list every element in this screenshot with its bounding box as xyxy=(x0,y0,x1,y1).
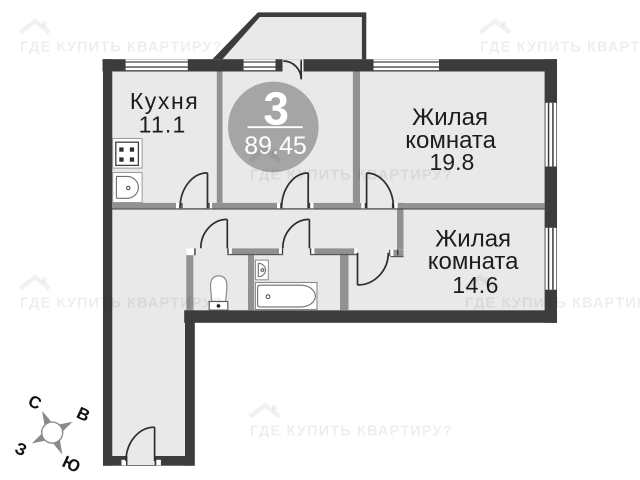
svg-text:ГДЕ КУПИТЬ КВАРТИРУ?: ГДЕ КУПИТЬ КВАРТИРУ? xyxy=(250,424,453,440)
svg-text:Кухня: Кухня xyxy=(130,88,200,114)
svg-text:комната: комната xyxy=(428,248,519,275)
svg-text:ГДЕ КУПИТЬ КВАРТИРУ?: ГДЕ КУПИТЬ КВАРТИРУ? xyxy=(250,168,453,184)
svg-text:ГДЕ КУПИТЬ КВАРТИРУ?: ГДЕ КУПИТЬ КВАРТИРУ? xyxy=(465,296,640,312)
svg-text:ГДЕ КУПИТЬ КВАРТИРУ?: ГДЕ КУПИТЬ КВАРТИРУ? xyxy=(480,40,640,56)
svg-text:11.1: 11.1 xyxy=(139,112,187,138)
svg-text:ГДЕ КУПИТЬ КВАРТИРУ?: ГДЕ КУПИТЬ КВАРТИРУ? xyxy=(20,40,223,56)
svg-text:ГДЕ КУПИТЬ КВАРТИРУ?: ГДЕ КУПИТЬ КВАРТИРУ? xyxy=(20,296,223,312)
